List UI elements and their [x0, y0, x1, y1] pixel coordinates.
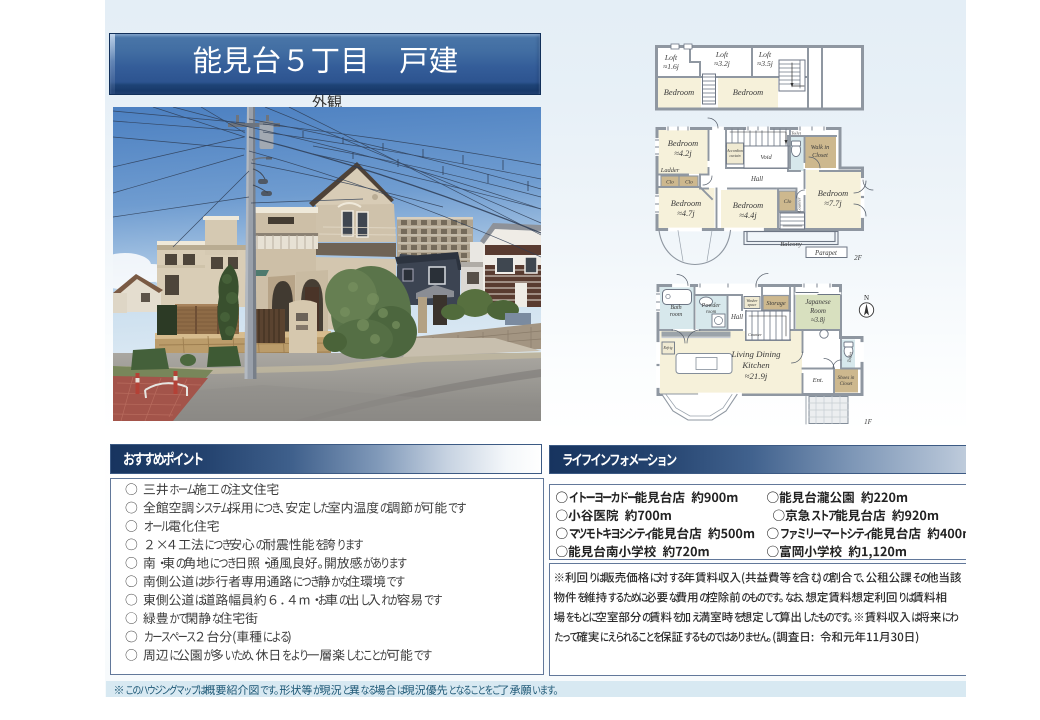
- svg-text:Kitchen: Kitchen: [741, 360, 770, 370]
- svg-text:Ladder: Ladder: [660, 167, 680, 174]
- svg-text:Storage: Storage: [766, 300, 786, 307]
- svg-text:Loft: Loft: [758, 50, 772, 59]
- svg-text:Living Dining: Living Dining: [730, 349, 781, 359]
- svg-text:≈3.5j: ≈3.5j: [757, 59, 773, 68]
- svg-text:Closet: Closet: [840, 382, 853, 387]
- svg-text:Bath: Bath: [670, 305, 681, 311]
- svg-text:Bedroom: Bedroom: [664, 88, 694, 97]
- svg-text:1F: 1F: [864, 418, 873, 426]
- svg-text:N: N: [864, 294, 869, 302]
- svg-text:≈4.4j: ≈4.4j: [739, 211, 757, 220]
- svg-text:Bedroom: Bedroom: [668, 139, 698, 148]
- svg-text:≈1.6j: ≈1.6j: [663, 62, 679, 71]
- svg-text:Bedroom: Bedroom: [733, 201, 763, 210]
- svg-text:Clo: Clo: [685, 180, 693, 186]
- svg-text:Counter: Counter: [797, 197, 802, 212]
- svg-text:Bedroom: Bedroom: [671, 199, 701, 208]
- svg-text:Room: Room: [809, 308, 826, 315]
- svg-text:Counter: Counter: [748, 332, 762, 337]
- svg-text:≈7.7j: ≈7.7j: [824, 199, 842, 208]
- svg-text:≈3.8j: ≈3.8j: [811, 317, 825, 324]
- svg-text:≈21.9j: ≈21.9j: [745, 371, 768, 381]
- svg-text:Parapet: Parapet: [814, 250, 838, 257]
- svg-text:≈3.2j: ≈3.2j: [714, 59, 730, 68]
- svg-text:2F: 2F: [854, 254, 863, 262]
- svg-text:Hall: Hall: [730, 314, 743, 321]
- svg-text:Balcony: Balcony: [780, 241, 802, 248]
- svg-text:Walk in: Walk in: [811, 144, 830, 151]
- svg-text:Void: Void: [760, 154, 772, 161]
- svg-text:Clo: Clo: [666, 180, 674, 186]
- svg-text:space: space: [748, 303, 757, 307]
- svg-text:Bedroom: Bedroom: [733, 88, 763, 97]
- svg-text:Loft: Loft: [715, 50, 729, 59]
- svg-text:Toilet: Toilet: [791, 131, 802, 136]
- svg-text:room: room: [670, 312, 683, 318]
- svg-text:curtain: curtain: [730, 154, 741, 158]
- svg-text:Hall: Hall: [750, 176, 763, 183]
- svg-text:Refrig: Refrig: [663, 346, 673, 350]
- svg-text:Clo: Clo: [784, 199, 792, 205]
- svg-text:Closet: Closet: [812, 152, 828, 159]
- svg-text:room: room: [706, 310, 717, 315]
- svg-text:Accordion: Accordion: [726, 149, 743, 153]
- svg-text:Shoes in: Shoes in: [838, 376, 855, 381]
- svg-text:Powder: Powder: [701, 303, 721, 309]
- svg-text:≈4.2j: ≈4.2j: [674, 149, 692, 158]
- svg-text:Loft: Loft: [664, 53, 678, 62]
- svg-text:Ent.: Ent.: [812, 377, 824, 384]
- svg-text:Japanese: Japanese: [805, 299, 830, 306]
- svg-text:Bedroom: Bedroom: [818, 189, 848, 198]
- svg-text:≈4.7j: ≈4.7j: [677, 209, 695, 218]
